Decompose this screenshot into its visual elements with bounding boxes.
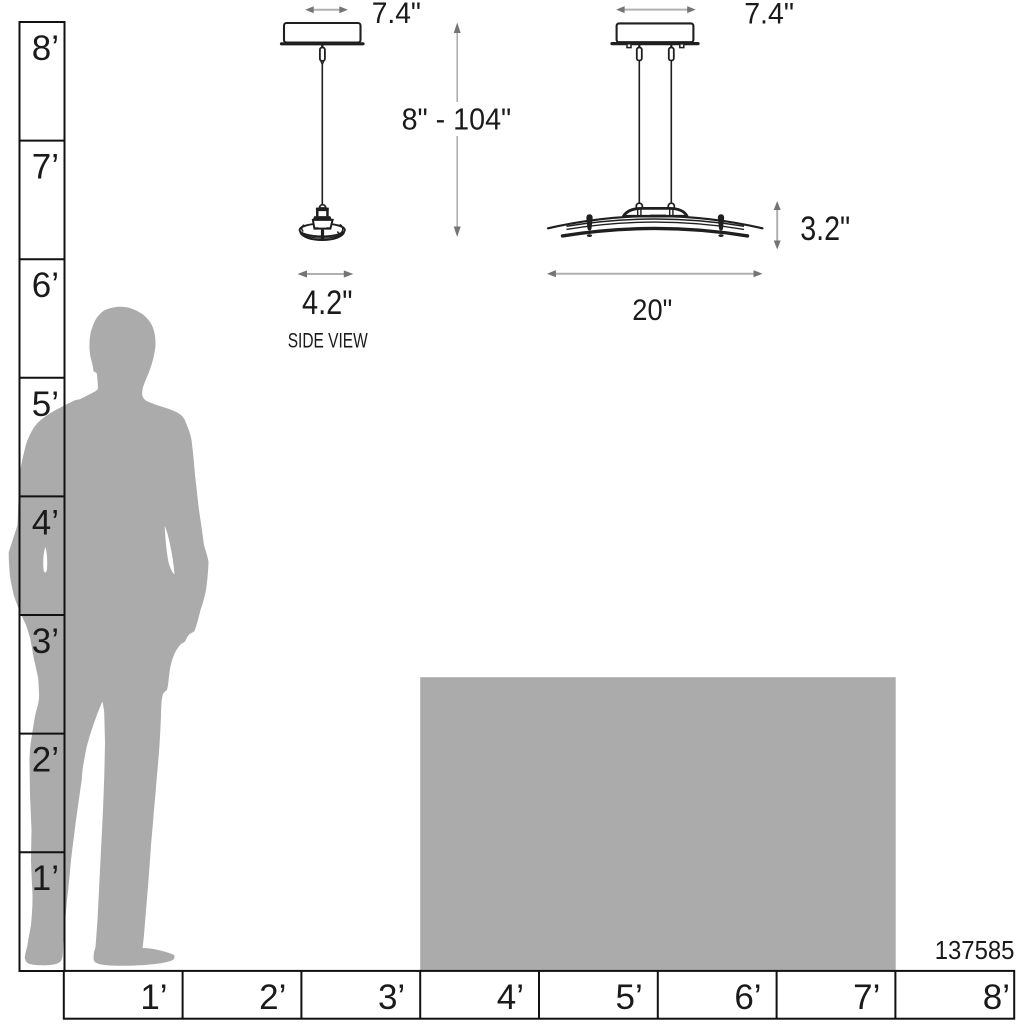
svg-text:1’: 1’ <box>140 978 167 1017</box>
svg-text:137585: 137585 <box>935 935 1015 965</box>
svg-text:4’: 4’ <box>32 503 59 542</box>
svg-text:1’: 1’ <box>32 859 59 898</box>
svg-text:3’: 3’ <box>32 622 59 661</box>
svg-text:5’: 5’ <box>616 978 643 1017</box>
svg-text:7’: 7’ <box>853 978 880 1017</box>
svg-text:SIDE VIEW: SIDE VIEW <box>288 329 368 352</box>
svg-text:20": 20" <box>632 294 672 327</box>
svg-text:7’: 7’ <box>32 148 59 187</box>
svg-text:3.2": 3.2" <box>800 210 850 248</box>
svg-text:5’: 5’ <box>32 385 59 424</box>
svg-text:6’: 6’ <box>32 266 59 305</box>
svg-text:4.2": 4.2" <box>302 284 353 322</box>
svg-text:8" - 104": 8" - 104" <box>402 101 512 136</box>
svg-text:4’: 4’ <box>497 978 524 1017</box>
svg-text:8’: 8’ <box>983 978 1010 1017</box>
svg-text:3’: 3’ <box>378 978 405 1017</box>
svg-text:7.4": 7.4" <box>744 0 794 31</box>
svg-text:8’: 8’ <box>32 29 59 68</box>
svg-text:7.4": 7.4" <box>372 0 421 30</box>
svg-text:2’: 2’ <box>32 741 59 780</box>
svg-text:6’: 6’ <box>734 978 761 1017</box>
svg-text:2’: 2’ <box>259 978 286 1017</box>
